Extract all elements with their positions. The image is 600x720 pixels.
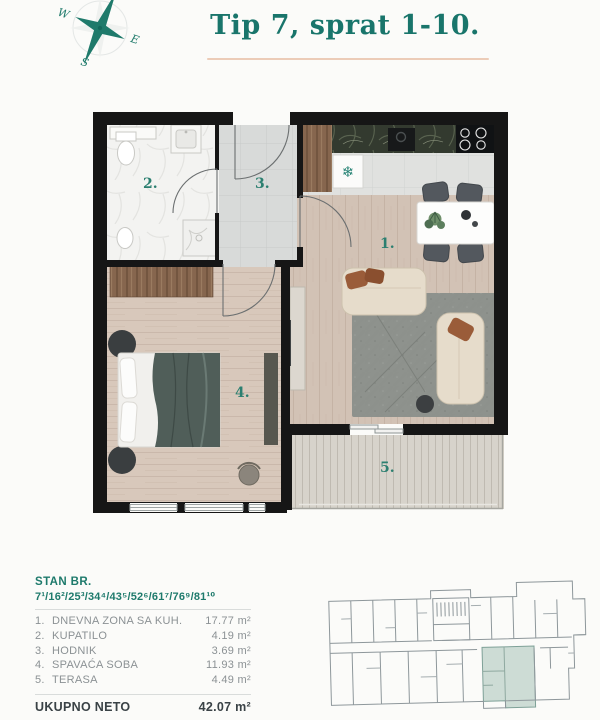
room-label-terrace: 5. [380,460,395,476]
stan-br-label: STAN BR. [35,576,251,588]
terrace-deck [292,435,504,509]
total-row: UKUPNO NETO 42.07 m² [35,700,251,714]
legend-row: 1. DNEVNA ZONA SA KUH. 17.77 m² [35,614,251,629]
legend-row-number: 3. [35,644,52,659]
tv-console [288,287,305,390]
dining-chair [456,183,483,205]
kitchen-tall-cabinet [300,125,332,192]
loveseat [437,313,484,404]
divider [35,694,251,695]
bed [118,353,220,447]
room-label-hallway: 3. [255,176,270,192]
dining-chair [457,242,484,264]
legend-row-area: 11.93 m² [189,658,251,673]
legend-row-area: 4.19 m² [189,629,251,644]
title-underline [207,58,489,60]
floor-plan: ❄ [85,92,515,522]
legend-row-number: 2. [35,629,52,644]
divider [35,609,251,610]
legend-row-number: 4. [35,658,52,673]
legend-row-area: 3.69 m² [189,644,251,659]
pillow [120,357,138,398]
legend-rows: 1. DNEVNA ZONA SA KUH. 17.77 m² 2. KUPAT… [35,614,251,688]
compass-rose: W E S [38,0,173,85]
fridge-snowflake-icon: ❄ [342,164,355,181]
sofa [342,268,426,315]
side-table [416,395,434,413]
legend-row-name: HODNIK [52,644,189,659]
compass-letter-west: W [56,6,72,22]
kitchen-sink-icon [388,128,415,151]
balcony-door [350,425,403,433]
pillow [120,402,138,443]
total-label: UKUPNO NETO [35,700,130,714]
room-label-living: 1. [380,236,395,252]
desk-chair [238,463,260,485]
legend-row-area: 4.49 m² [189,673,251,688]
stairwell [433,598,470,641]
key-plan-corridor [330,637,572,653]
toilet-icon [118,141,135,165]
wardrobe [110,265,213,297]
key-plan [322,576,596,718]
dresser [264,353,278,445]
bidet-icon [117,228,133,249]
legend-row-name: TERASA [52,673,189,688]
round-rug [108,446,136,474]
legend-row-number: 1. [35,614,52,629]
table-decor [472,221,478,227]
total-area: 42.07 m² [199,700,251,714]
legend-row: 3. HODNIK 3.69 m² [35,644,251,659]
key-plan-units-top [351,595,586,643]
key-plan-details [341,603,575,679]
table-decor [461,210,471,220]
compass-letter-south: S [79,55,91,70]
legend: STAN BR. 7¹/16²/25³/34⁴/43⁵/52⁶/61⁷/76⁹/… [35,576,251,714]
shower [183,220,216,256]
legend-row: 5. TERASA 4.49 m² [35,673,251,688]
key-plan-outline [328,581,587,713]
toilet-tank [116,132,136,141]
legend-row: 4. SPAVAĆA SOBA 11.93 m² [35,658,251,673]
legend-row-area: 17.77 m² [189,614,251,629]
legend-row-name: DNEVNA ZONA SA KUH. [52,614,189,629]
blanket [153,353,221,447]
page-title: Tip 7, sprat 1-10. [188,10,502,41]
legend-row-name: KUPATILO [52,629,189,644]
apartment-numbers: 7¹/16²/25³/34⁴/43⁵/52⁶/61⁷/76⁹/81¹⁰ [35,590,251,603]
compass-letter-east: E [128,32,141,47]
key-plan-highlight [482,646,536,708]
legend-row-name: SPAVAĆA SOBA [52,658,189,673]
page: W E S Tip 7, sprat 1-10. [0,0,600,720]
legend-row: 2. KUPATILO 4.19 m² [35,629,251,644]
legend-row-number: 5. [35,673,52,688]
room-label-bathroom: 2. [143,176,158,192]
dining-chair [422,181,449,203]
room-label-bedroom: 4. [235,385,250,401]
